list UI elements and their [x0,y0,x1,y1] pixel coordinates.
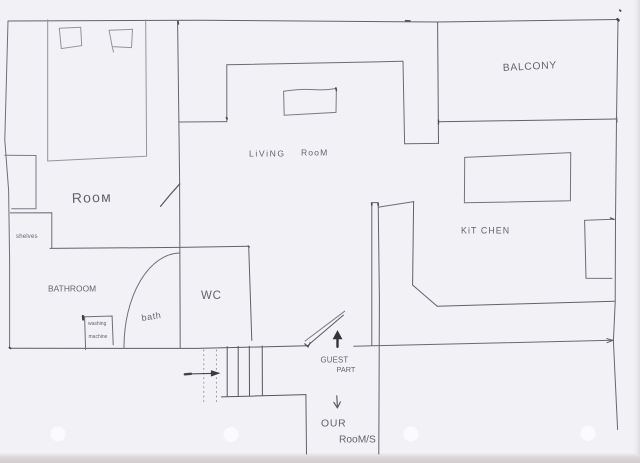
svg-text:Rooм: Rooм [72,189,113,206]
svg-text:BATHROOM: BATHROOM [48,284,96,294]
svg-text:OUR: OUR [321,419,347,430]
svg-text:shelves: shelves [16,234,38,240]
svg-text:RooM/S: RooM/S [339,435,376,446]
svg-text:WC: WC [201,290,222,302]
svg-text:RooM: RooM [301,148,328,158]
svg-text:GUEST: GUEST [321,356,349,365]
svg-text:machine: machine [89,334,108,340]
svg-text:KiT CHEN: KiT CHEN [461,226,510,236]
svg-text:LiViNG: LiViNG [249,149,286,159]
svg-text:washing: washing [88,321,107,327]
svg-text:PART: PART [337,365,356,374]
